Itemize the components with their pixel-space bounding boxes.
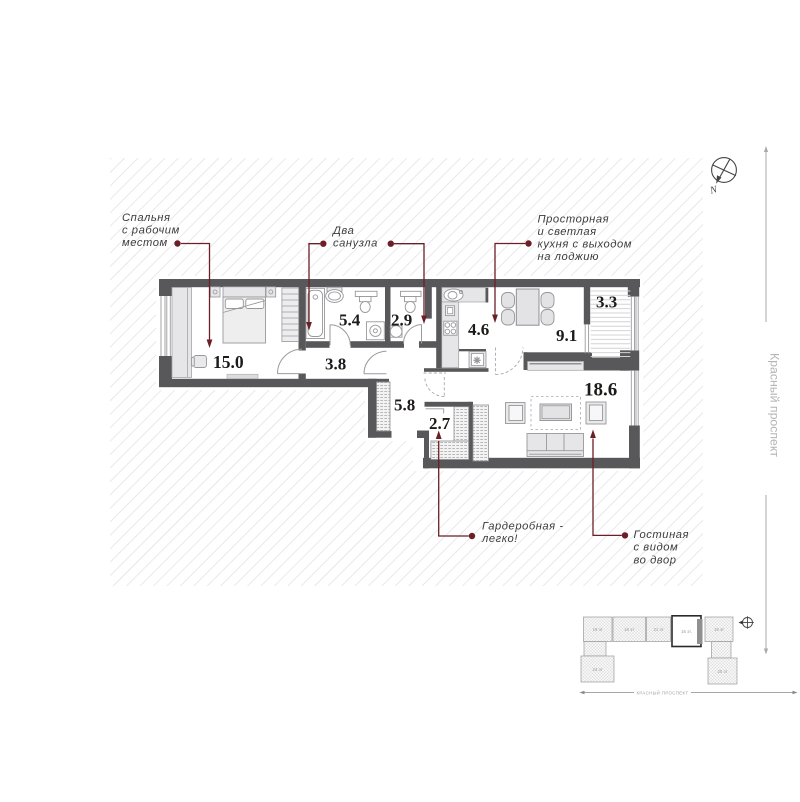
svg-text:Спальня: Спальня — [122, 212, 171, 224]
svg-text:с рабочим: с рабочим — [122, 224, 180, 236]
svg-text:15.0: 15.0 — [213, 352, 244, 372]
svg-text:санузла: санузла — [333, 237, 378, 249]
svg-text:2.7: 2.7 — [429, 414, 451, 433]
svg-text:19 эт: 19 эт — [593, 627, 603, 632]
svg-text:18 эт: 18 эт — [624, 627, 634, 632]
svg-text:Красный проспект: Красный проспект — [768, 353, 782, 457]
svg-text:местом: местом — [122, 237, 168, 249]
svg-text:24 эт: 24 эт — [592, 667, 602, 672]
svg-text:3.8: 3.8 — [325, 355, 346, 374]
svg-text:5.4: 5.4 — [339, 311, 361, 330]
svg-text:21 эт: 21 эт — [653, 627, 663, 632]
svg-text:Гостиная: Гостиная — [634, 529, 690, 541]
svg-text:легко!: легко! — [481, 533, 518, 545]
svg-text:2.9: 2.9 — [391, 311, 412, 330]
svg-text:Просторная: Просторная — [538, 214, 610, 226]
svg-text:20 эт: 20 эт — [717, 669, 727, 674]
svg-text:4.6: 4.6 — [468, 320, 489, 339]
svg-text:КРАСНЫЙ ПРОСПЕКТ: КРАСНЫЙ ПРОСПЕКТ — [637, 691, 689, 696]
svg-text:19 эт: 19 эт — [714, 627, 724, 632]
svg-text:Гардеробная -: Гардеробная - — [482, 521, 564, 533]
svg-text:на лоджию: на лоджию — [538, 251, 600, 263]
svg-text:с видом: с видом — [634, 542, 679, 554]
svg-text:во двор: во двор — [634, 554, 677, 566]
svg-text:5.8: 5.8 — [394, 396, 415, 415]
svg-text:3.3: 3.3 — [596, 293, 617, 312]
svg-text:16 эт.: 16 эт. — [681, 629, 692, 634]
svg-text:Два: Два — [331, 225, 354, 237]
svg-text:кухня с выходом: кухня с выходом — [538, 239, 633, 251]
svg-text:и светлая: и светлая — [538, 226, 597, 238]
svg-text:18.6: 18.6 — [584, 380, 617, 401]
svg-text:✳: ✳ — [473, 356, 481, 366]
svg-text:9.1: 9.1 — [556, 326, 577, 345]
